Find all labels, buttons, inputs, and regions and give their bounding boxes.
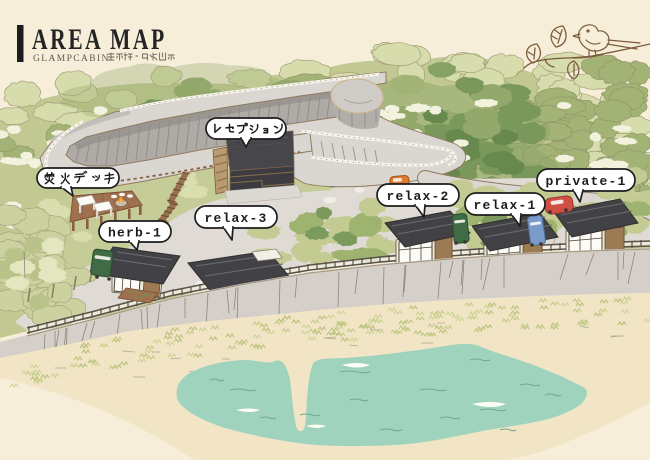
svg-text:AREA MAP: AREA MAP xyxy=(32,23,167,56)
svg-text:herb-1: herb-1 xyxy=(108,226,162,241)
svg-text:relax-3: relax-3 xyxy=(204,211,267,226)
svg-text:relax-2: relax-2 xyxy=(386,189,449,204)
svg-text:relax-1: relax-1 xyxy=(473,198,536,213)
svg-text:GLAMPCABIN: GLAMPCABIN xyxy=(33,54,110,64)
svg-text:private-1: private-1 xyxy=(545,174,626,189)
